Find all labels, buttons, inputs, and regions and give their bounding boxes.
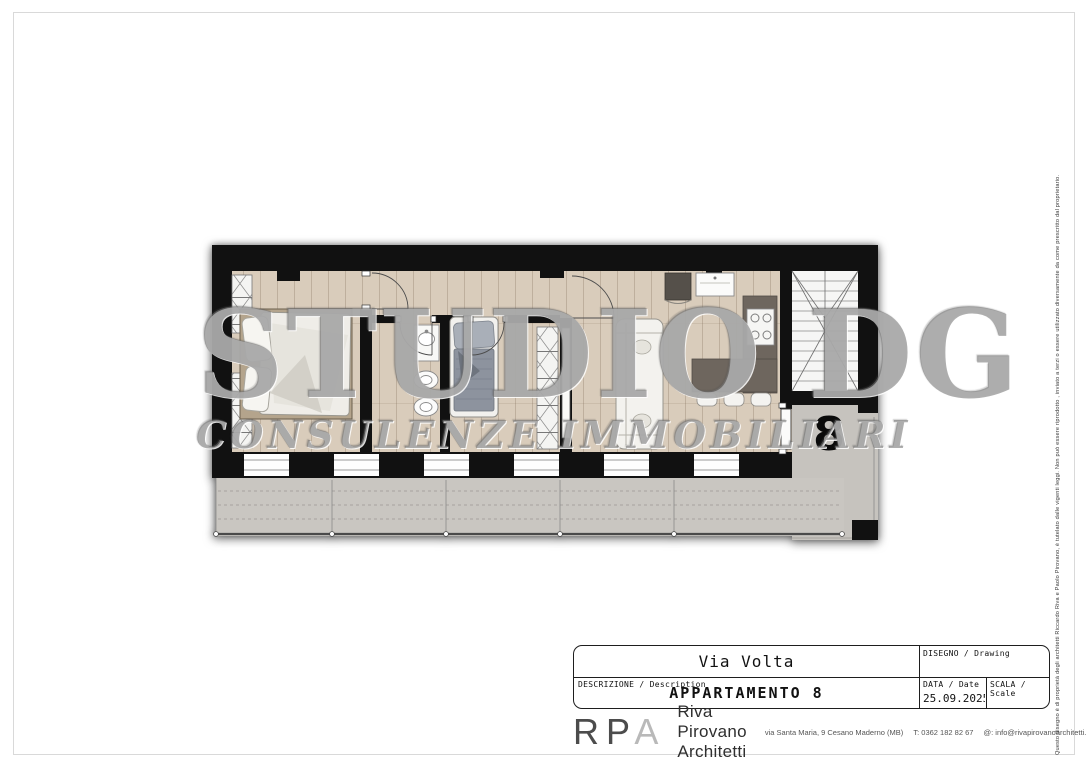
cushion [633,340,651,354]
kitchen-sink [696,273,734,296]
firm-name: Riva Pirovano Architetti [677,702,747,762]
floor-plan: 8 [210,243,882,545]
kitchen-island [692,359,777,392]
drawing-label: DISEGNO / Drawing [923,649,1047,675]
title-block-divider-v2 [986,677,987,708]
logo-letter-r: R [573,711,606,752]
entry-door-leaf [781,409,791,449]
pillow [241,316,272,363]
window [424,454,469,476]
wall-right [858,245,878,413]
firm-signature: RPA Riva Pirovano Architetti via Santa M… [573,712,1063,752]
window [334,454,379,476]
window [604,454,649,476]
sofa [616,319,663,449]
wall-stair-bottom [780,391,878,405]
single-bed [450,317,498,417]
wall-left [212,245,232,478]
window [514,454,559,476]
pillow [242,366,272,412]
firm-email: @: info@rivapirovanoarchitetti.com [984,728,1086,737]
staircase [792,271,858,391]
sliding-door [562,328,570,438]
cushion [633,414,651,428]
fridge [665,273,691,300]
floor-plan-drawing: 8 [210,243,882,545]
wall-top [212,245,878,271]
date-value: 25.09.2025 [923,692,985,705]
wall-bedroom1 [360,309,372,452]
balcony-floor [216,478,844,536]
rpa-logo: RPA [573,714,665,750]
wall-corridor-c [504,315,560,323]
wall-corner-block [852,520,878,540]
firm-contact: via Santa Maria, 9 Cesano Maderno (MB) T… [757,728,1086,737]
title-block: Via Volta DISEGNO / Drawing DESCRIZIONE … [573,645,1050,709]
stool [724,393,744,406]
window [694,454,739,476]
double-bed [240,309,352,419]
date-label: DATA / Date [923,680,985,689]
pillow [453,321,495,350]
logo-letter-a: A [634,711,665,752]
wardrobe-bedroom2 [537,327,558,449]
wall-pillar-b [540,271,564,278]
window [244,454,289,476]
stool [697,393,717,406]
scale-label: SCALA / Scale [990,680,1047,698]
wall-pillar-a [277,271,300,281]
unit-number-label: 8 [813,407,845,461]
wall-stairwell [780,271,792,391]
wall-bathroom [440,323,450,452]
firm-phone: T: 0362 182 82 67 [913,728,973,737]
logo-letter-p: P [606,711,634,752]
street-name: Via Volta [574,646,919,677]
firm-address: via Santa Maria, 9 Cesano Maderno (MB) [765,728,903,737]
entry-door [779,403,791,454]
stool [751,393,771,406]
copyright-disclaimer: Questo disegno è di proprietà degli arch… [1055,140,1067,755]
stove [747,309,774,345]
